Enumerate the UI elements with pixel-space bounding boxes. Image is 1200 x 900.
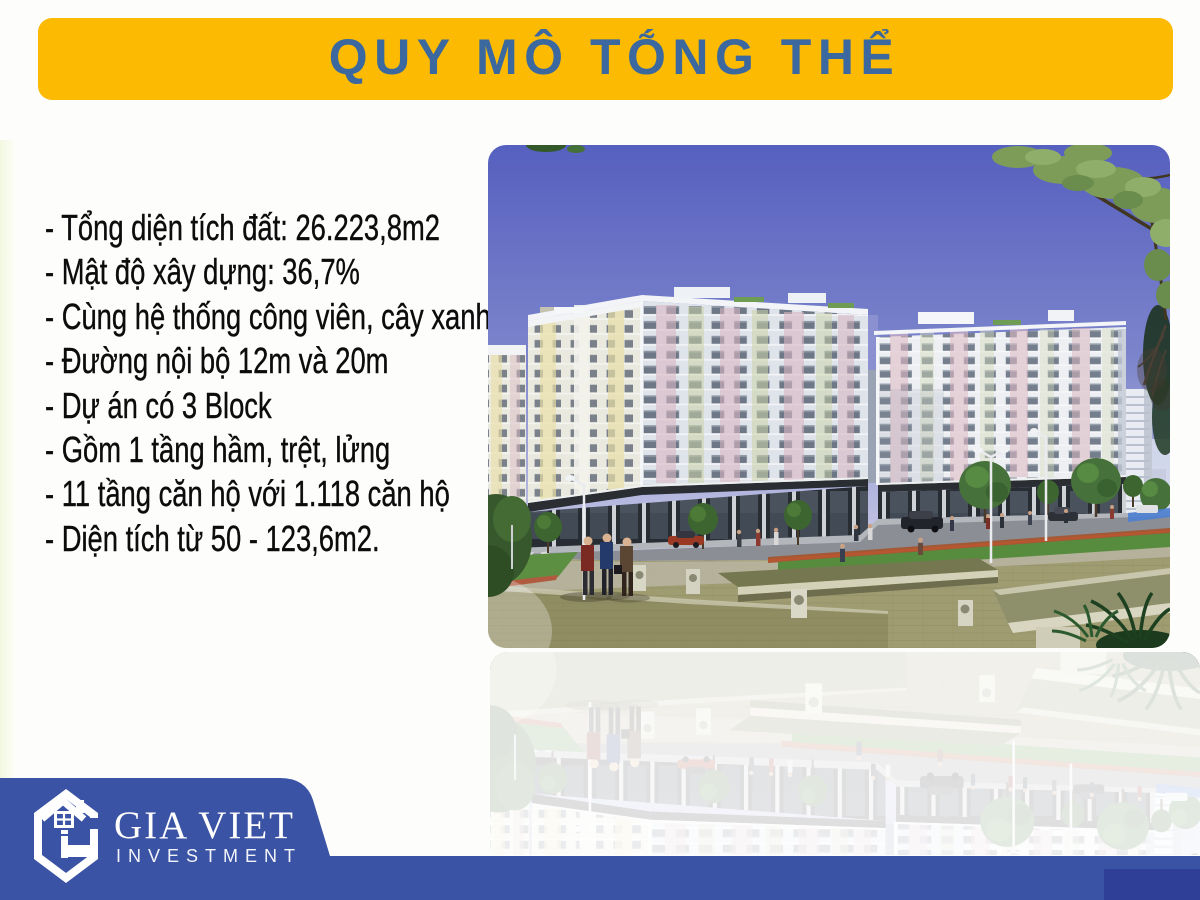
svg-text:INVESTMENT: INVESTMENT — [116, 846, 302, 866]
svg-text:GIA VIET: GIA VIET — [114, 804, 295, 847]
